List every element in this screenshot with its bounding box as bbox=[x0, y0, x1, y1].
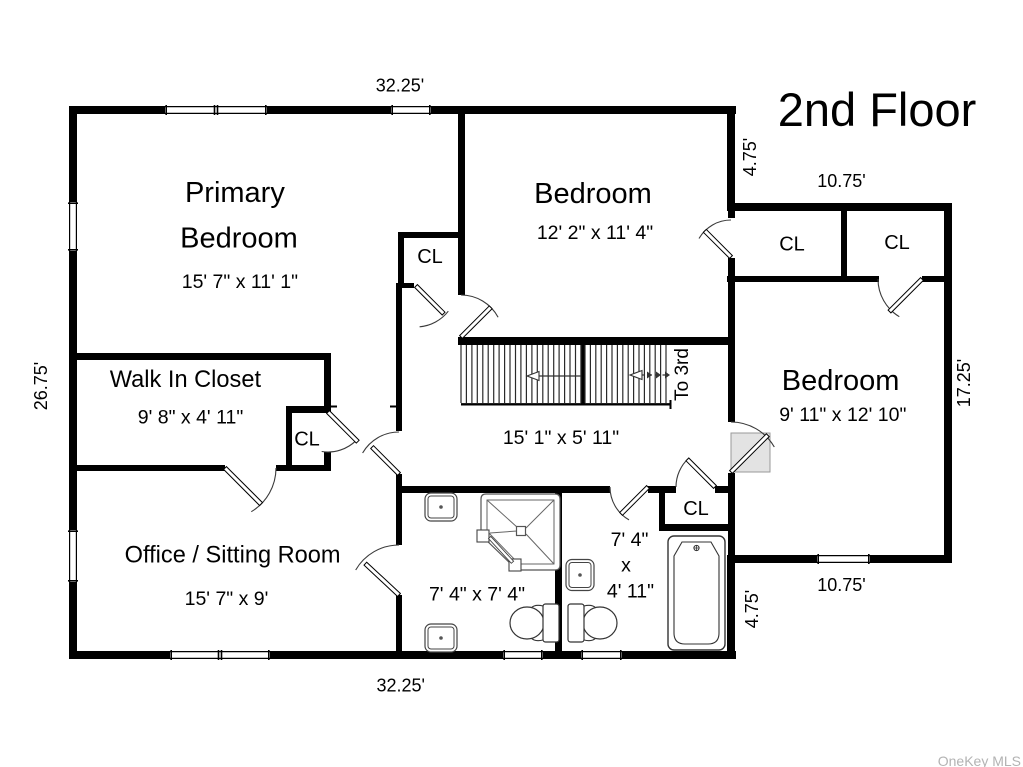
svg-text:9' 8" x 4' 11": 9' 8" x 4' 11" bbox=[138, 407, 244, 429]
svg-text:OneKey MLS: OneKey MLS bbox=[938, 753, 1021, 767]
svg-text:CL: CL bbox=[294, 429, 320, 451]
svg-text:4.75': 4.75' bbox=[742, 590, 762, 628]
svg-text:32.25': 32.25' bbox=[376, 676, 424, 696]
svg-text:10.75': 10.75' bbox=[817, 575, 865, 595]
svg-text:Bedroom: Bedroom bbox=[534, 178, 652, 210]
svg-text:4.75': 4.75' bbox=[740, 138, 760, 176]
svg-text:To 3rd: To 3rd bbox=[672, 348, 693, 401]
svg-text:Walk In Closet: Walk In Closet bbox=[110, 367, 262, 393]
svg-text:12' 2" x 11' 4": 12' 2" x 11' 4" bbox=[537, 222, 653, 244]
svg-text:15' 1" x 5' 11": 15' 1" x 5' 11" bbox=[503, 427, 619, 449]
svg-text:15' 7" x 9': 15' 7" x 9' bbox=[185, 588, 269, 610]
svg-text:CL: CL bbox=[417, 246, 443, 268]
svg-text:Office / Sitting Room: Office / Sitting Room bbox=[125, 543, 341, 569]
svg-text:Bedroom: Bedroom bbox=[782, 365, 900, 397]
svg-text:26.75': 26.75' bbox=[31, 362, 51, 410]
svg-text:Bedroom: Bedroom bbox=[180, 223, 298, 255]
svg-text:7' 4" x 7' 4": 7' 4" x 7' 4" bbox=[429, 584, 525, 606]
svg-text:32.25': 32.25' bbox=[376, 76, 424, 96]
svg-text:CL: CL bbox=[884, 232, 910, 254]
svg-text:4' 11": 4' 11" bbox=[607, 581, 654, 603]
svg-text:10.75': 10.75' bbox=[817, 171, 865, 191]
svg-text:17.25': 17.25' bbox=[954, 359, 974, 407]
svg-text:Primary: Primary bbox=[185, 177, 285, 209]
svg-text:2nd Floor: 2nd Floor bbox=[778, 83, 977, 136]
svg-text:15' 7" x 11' 1": 15' 7" x 11' 1" bbox=[182, 271, 298, 293]
svg-text:CL: CL bbox=[779, 234, 805, 256]
svg-text:CL: CL bbox=[683, 498, 709, 520]
svg-text:x: x bbox=[621, 555, 631, 577]
svg-text:9' 11" x 12' 10": 9' 11" x 12' 10" bbox=[779, 404, 906, 426]
svg-text:7' 4": 7' 4" bbox=[611, 529, 649, 551]
